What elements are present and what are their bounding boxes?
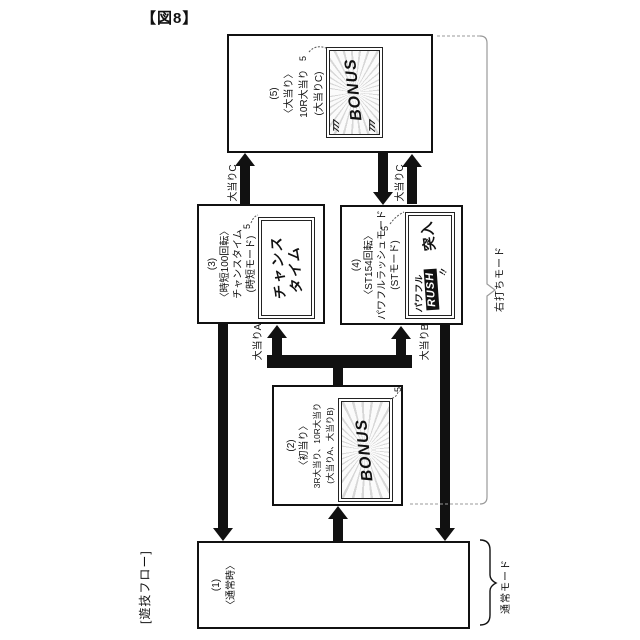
arrow-4-to-1-head <box>435 528 455 541</box>
box2-bonus-image: BONUS <box>341 401 390 499</box>
patent-figure-page: 【図8】 [遊技フロー] (1) 〈通常時〉 (2) 〈初当り〉 3R大当り、1… <box>0 0 640 640</box>
arrow-1-to-2-shaft <box>333 518 343 541</box>
state-box-1-normal: (1) 〈通常時〉 <box>197 541 470 629</box>
box2-display-screen: BONUS <box>338 398 393 502</box>
box2-bonus-text: BONUS <box>351 401 379 498</box>
arrow-2-to-3-label: 大当りA <box>249 315 264 369</box>
arrow-3-to-5-shaft <box>240 165 250 204</box>
ref-leader-box2 <box>388 390 400 402</box>
box3-chance-text: チャンス タイム <box>266 220 306 316</box>
arrow-2-to-3-head <box>267 325 287 338</box>
state-box-2-first-hit: (2) 〈初当り〉 3R大当り、10R大当り (大当りA、大当りB) BONUS <box>272 385 403 506</box>
arrow-3-to-1-shaft <box>218 324 228 528</box>
box3-display-screen: チャンス タイム <box>258 217 315 319</box>
box1-line-number: (1) <box>209 543 224 627</box>
state-box-2-text: (2) 〈初当り〉 3R大当り、10R大当り (大当りA、大当りB) <box>285 387 337 504</box>
box5-sevens-top: 777 <box>332 120 341 133</box>
state-box-1-text: (1) 〈通常時〉 <box>209 543 239 627</box>
box2-line-rounds: 3R大当り、10R大当り <box>311 387 324 504</box>
box5-line-number: (5) <box>267 36 282 151</box>
box2-line-state: 〈初当り〉 <box>298 387 311 504</box>
state-box-3-chance-time: (3) 〈時短100回転〉 チャンスタイム (時短モード) チャンス タイム <box>197 204 325 324</box>
box4-line-state: 〈ST154回転〉 <box>363 207 376 323</box>
ref-leader-box5 <box>307 43 329 55</box>
box5-sevens-bottom: 777 <box>368 120 377 133</box>
arrow-3-to-5-label: 大当りC <box>224 155 239 211</box>
box5-bonus-image: 777 777 BONUS <box>329 50 380 135</box>
state-box-5-jackpot: (5) 〈大当り〉 10R大当り (大当りC) 777 777 BONUS <box>227 34 433 153</box>
arrow-1-to-2-head <box>328 506 348 519</box>
rotated-diagram-canvas: [遊技フロー] (1) 〈通常時〉 (2) 〈初当り〉 3R大当り、10R大当り… <box>0 0 640 640</box>
box5-line-state: 〈大当り〉 <box>282 36 297 151</box>
box3-line-state: 〈時短100回転〉 <box>219 206 232 322</box>
ref-leader-box3 <box>249 213 260 225</box>
box5-display-screen: 777 777 BONUS <box>326 47 383 138</box>
game-flow-label: [遊技フロー] <box>136 550 153 624</box>
box1-line-state: 〈通常時〉 <box>224 543 239 627</box>
arrow-3-to-1-head <box>213 528 233 541</box>
box2-line-number: (2) <box>285 387 298 504</box>
box2-line-types: (大当りA、大当りB) <box>324 387 337 504</box>
ref-numeral-5-box4: 5 <box>380 226 390 231</box>
arrow-2-to-3-shaft <box>272 337 282 356</box>
arrow-2-split-bar <box>267 355 412 368</box>
box3-chance-image: チャンス タイム <box>261 220 312 316</box>
normal-mode-label: 通常モード <box>497 559 512 614</box>
ref-numeral-5-box5: 5 <box>298 56 308 61</box>
box3-line-number: (3) <box>206 206 219 322</box>
arrow-2-to-4-shaft <box>396 338 406 356</box>
arrow-5-to-4-head <box>373 192 393 205</box>
ref-leader-box4 <box>388 210 406 226</box>
box4-line-number: (4) <box>350 207 363 323</box>
arrow-5-to-4-shaft <box>378 153 388 192</box>
box5-bonus-text: BONUS <box>341 50 367 128</box>
right-strike-mode-label: 右打ちモード <box>491 246 506 312</box>
